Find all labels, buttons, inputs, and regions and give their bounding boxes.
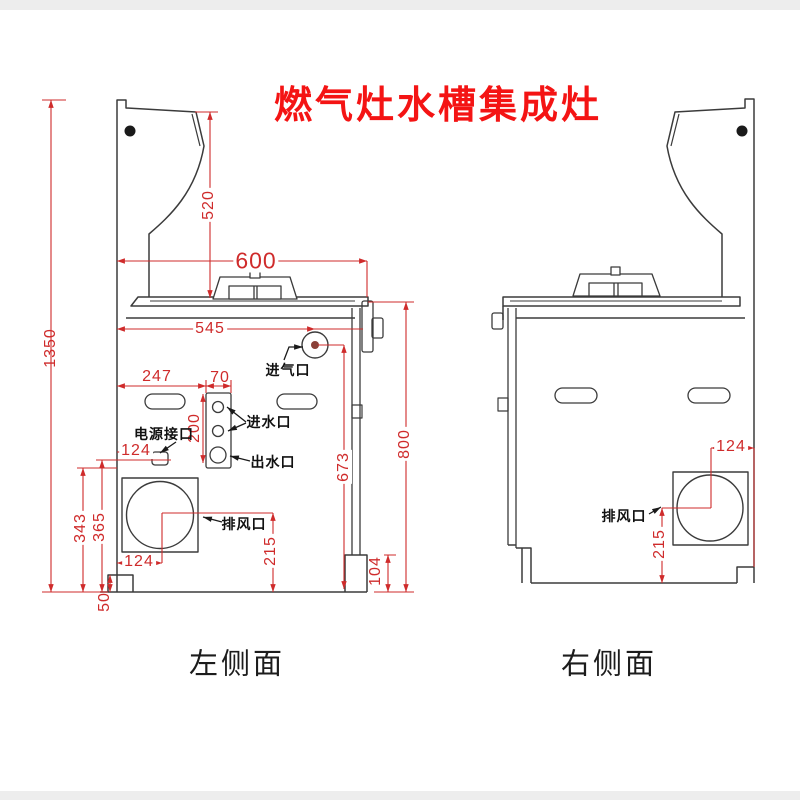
dim-body-height: 800 bbox=[397, 427, 413, 461]
caption-left-view: 左侧面 bbox=[189, 651, 285, 680]
left-slot-handle-1 bbox=[145, 394, 185, 409]
right-burner bbox=[573, 267, 660, 296]
left-mount-hole bbox=[125, 126, 136, 137]
left-exhaust-box bbox=[122, 478, 198, 552]
dim-vent-offset-right: 124 bbox=[714, 439, 748, 455]
dim-foot-height-left: 50 bbox=[97, 592, 113, 612]
label-exhaust-left: 排风口 bbox=[222, 517, 267, 531]
right-view-leaders bbox=[649, 507, 661, 514]
label-gas-inlet: 进气口 bbox=[266, 363, 311, 377]
dim-vent-offset-left: 124 bbox=[122, 554, 156, 570]
dim-vent-height-left: 215 bbox=[263, 534, 279, 568]
left-exhaust-circle bbox=[127, 482, 194, 549]
dim-total-height: 1350 bbox=[43, 328, 59, 368]
dim-counter-depth: 545 bbox=[193, 321, 227, 337]
caption-right-view: 右侧面 bbox=[561, 651, 657, 680]
dim-vent-lower: 365 bbox=[92, 510, 108, 544]
dim-rear-height: 673 bbox=[336, 450, 352, 484]
label-water-outlet: 出水口 bbox=[251, 455, 296, 469]
dim-vent-height-right: 215 bbox=[652, 527, 668, 561]
label-water-inlet: 进水口 bbox=[247, 415, 292, 429]
right-view-dimensions bbox=[662, 448, 754, 583]
gas-inlet-dot bbox=[311, 341, 319, 349]
left-slot-handle-2 bbox=[277, 394, 317, 409]
drawing-title: 燃气灶水槽集成灶 bbox=[274, 87, 602, 125]
dim-panel-width: 70 bbox=[210, 370, 230, 386]
dim-slot-offset: 247 bbox=[142, 369, 172, 385]
label-power-socket: 电源接口 bbox=[134, 427, 194, 441]
right-slot-handle-2 bbox=[688, 388, 730, 403]
left-burner bbox=[213, 270, 297, 299]
drawing-canvas: 燃气灶水槽集成灶 1350 520 600 545 247 70 200 124… bbox=[0, 0, 800, 800]
water-inlet-hole-1 bbox=[213, 402, 224, 413]
water-inlet-hole-2 bbox=[213, 426, 224, 437]
dim-power-offset: 124 bbox=[119, 443, 153, 459]
dim-foot-height-right: 104 bbox=[368, 554, 384, 588]
dim-hood-height: 520 bbox=[201, 188, 217, 222]
right-mount-hole bbox=[737, 126, 748, 137]
dim-top-width: 600 bbox=[233, 250, 278, 273]
dim-vent-upper: 343 bbox=[73, 511, 89, 545]
power-socket-box bbox=[152, 452, 168, 465]
right-side-knob bbox=[498, 398, 508, 411]
water-outlet-hole bbox=[210, 447, 226, 463]
right-slot-handle-1 bbox=[555, 388, 597, 403]
label-exhaust-right: 排风口 bbox=[602, 509, 647, 523]
